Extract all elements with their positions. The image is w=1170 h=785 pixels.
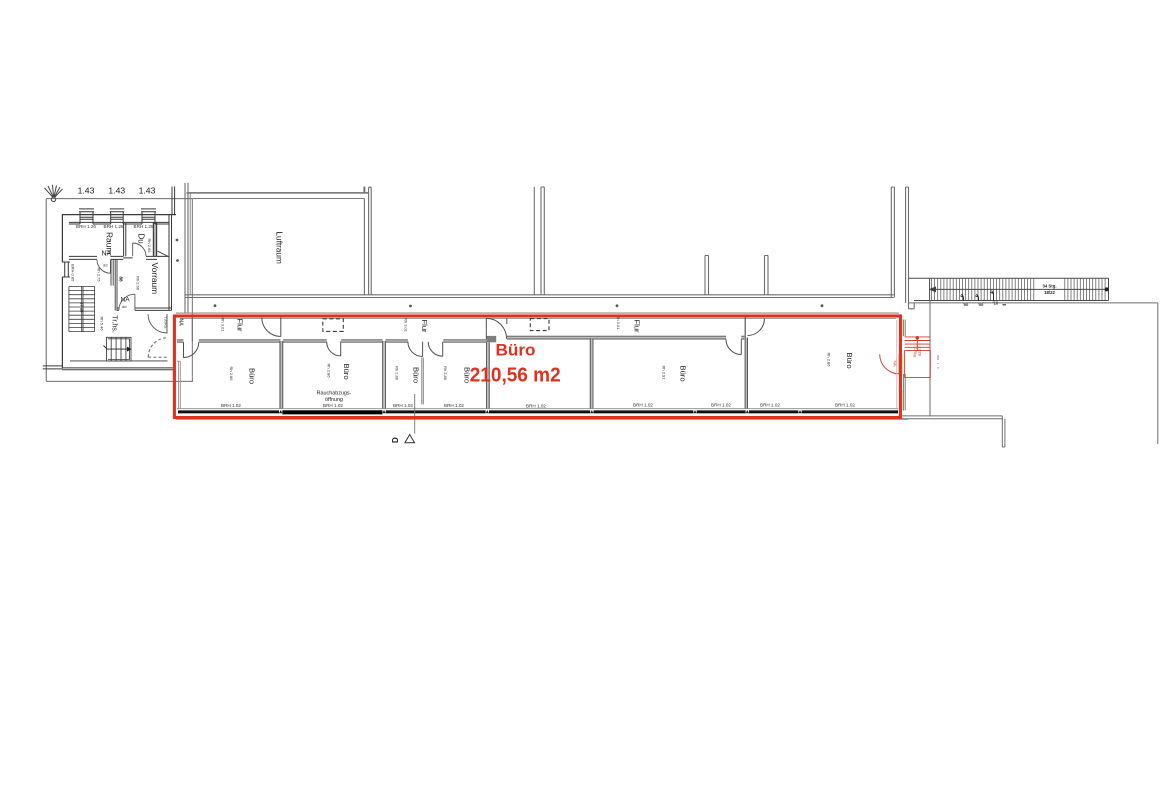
svg-text:34 Stg.: 34 Stg.	[1042, 284, 1056, 289]
svg-text:Büro: Büro	[679, 366, 688, 382]
svg-text:Rh 5.46: Rh 5.46	[100, 317, 105, 332]
svg-text:Rh 2.66: Rh 2.66	[136, 276, 141, 291]
svg-text:17 18: 17 18	[80, 302, 85, 313]
svg-text:dd: dd	[122, 304, 126, 309]
svg-text:BRH 1.02: BRH 1.02	[221, 403, 241, 408]
svg-text:Du: Du	[137, 234, 146, 244]
svg-text:BRH 1.02: BRH 1.02	[526, 403, 546, 408]
svg-text:Büro: Büro	[496, 341, 536, 360]
svg-text:Rauchabzugs-: Rauchabzugs-	[317, 391, 352, 397]
svg-text:Rh 2.86: Rh 2.86	[443, 366, 448, 381]
svg-text:17/28: 17/28	[918, 347, 922, 357]
svg-text:BRH 1.02: BRH 1.02	[760, 402, 780, 407]
svg-text:BRH 1.26: BRH 1.26	[134, 224, 154, 229]
svg-text:Flur: Flur	[236, 319, 245, 333]
svg-text:BRH 1.02: BRH 1.02	[835, 402, 855, 407]
svg-text:1.43: 1.43	[78, 185, 95, 195]
svg-text:Rh 3.01: Rh 3.01	[221, 318, 226, 333]
svg-text:Flur: Flur	[420, 320, 429, 334]
svg-text:Rh 2.75: Rh 2.75	[97, 268, 102, 283]
svg-text:NA: NA	[121, 297, 131, 304]
svg-text:NA: NA	[102, 250, 112, 257]
svg-text:öffnung: öffnung	[325, 397, 343, 403]
svg-text:Rh 2.69: Rh 2.69	[147, 239, 152, 254]
svg-text:88: 88	[119, 277, 124, 283]
svg-text:dd: dd	[103, 263, 107, 268]
svg-text:Rh 3.01: Rh 3.01	[616, 316, 621, 331]
svg-text:Büro: Büro	[412, 367, 421, 383]
svg-text:D: D	[391, 437, 400, 443]
svg-text:Rh 2.91: Rh 2.91	[662, 366, 667, 381]
svg-text:BRH 1.26: BRH 1.26	[76, 224, 96, 229]
svg-text:Flur: Flur	[633, 320, 642, 334]
svg-text:Rh 2.86: Rh 2.86	[827, 353, 832, 368]
svg-text:NA: NA	[178, 319, 184, 327]
svg-text:BRH 1.02: BRH 1.02	[323, 403, 343, 408]
svg-text:Büro: Büro	[342, 364, 351, 380]
svg-text:Büro: Büro	[845, 353, 854, 369]
svg-text:BRH 0.85: BRH 0.85	[71, 264, 76, 282]
svg-text:1.43: 1.43	[108, 185, 125, 195]
svg-text:BRH 1.02: BRH 1.02	[633, 402, 653, 407]
svg-text:Rh 2.86: Rh 2.86	[327, 364, 332, 379]
svg-text:Tr.hs.: Tr.hs.	[110, 315, 119, 333]
svg-text:Büro: Büro	[248, 368, 257, 384]
svg-text:Rh 3.01: Rh 3.01	[404, 318, 409, 333]
svg-text:11 Stg.: 11 Stg.	[913, 346, 917, 358]
svg-text:210,56 m2: 210,56 m2	[470, 364, 561, 387]
svg-text:BRH 1.02: BRH 1.02	[393, 403, 413, 408]
svg-text:BRH 1.02: BRH 1.02	[444, 403, 464, 408]
svg-text:18/22: 18/22	[1044, 290, 1055, 295]
svg-text:Luftraum: Luftraum	[275, 232, 284, 264]
svg-text:BRH 1.02: BRH 1.02	[711, 402, 731, 407]
svg-text:BRH 1.26: BRH 1.26	[104, 224, 124, 229]
svg-text:Rh 2.86: Rh 2.86	[395, 366, 400, 381]
svg-text:T30RS: T30RS	[164, 316, 169, 329]
svg-text:Vorraum: Vorraum	[150, 263, 160, 295]
svg-text:Rh 2.86: Rh 2.86	[229, 367, 234, 382]
svg-text:1.43: 1.43	[139, 185, 156, 195]
